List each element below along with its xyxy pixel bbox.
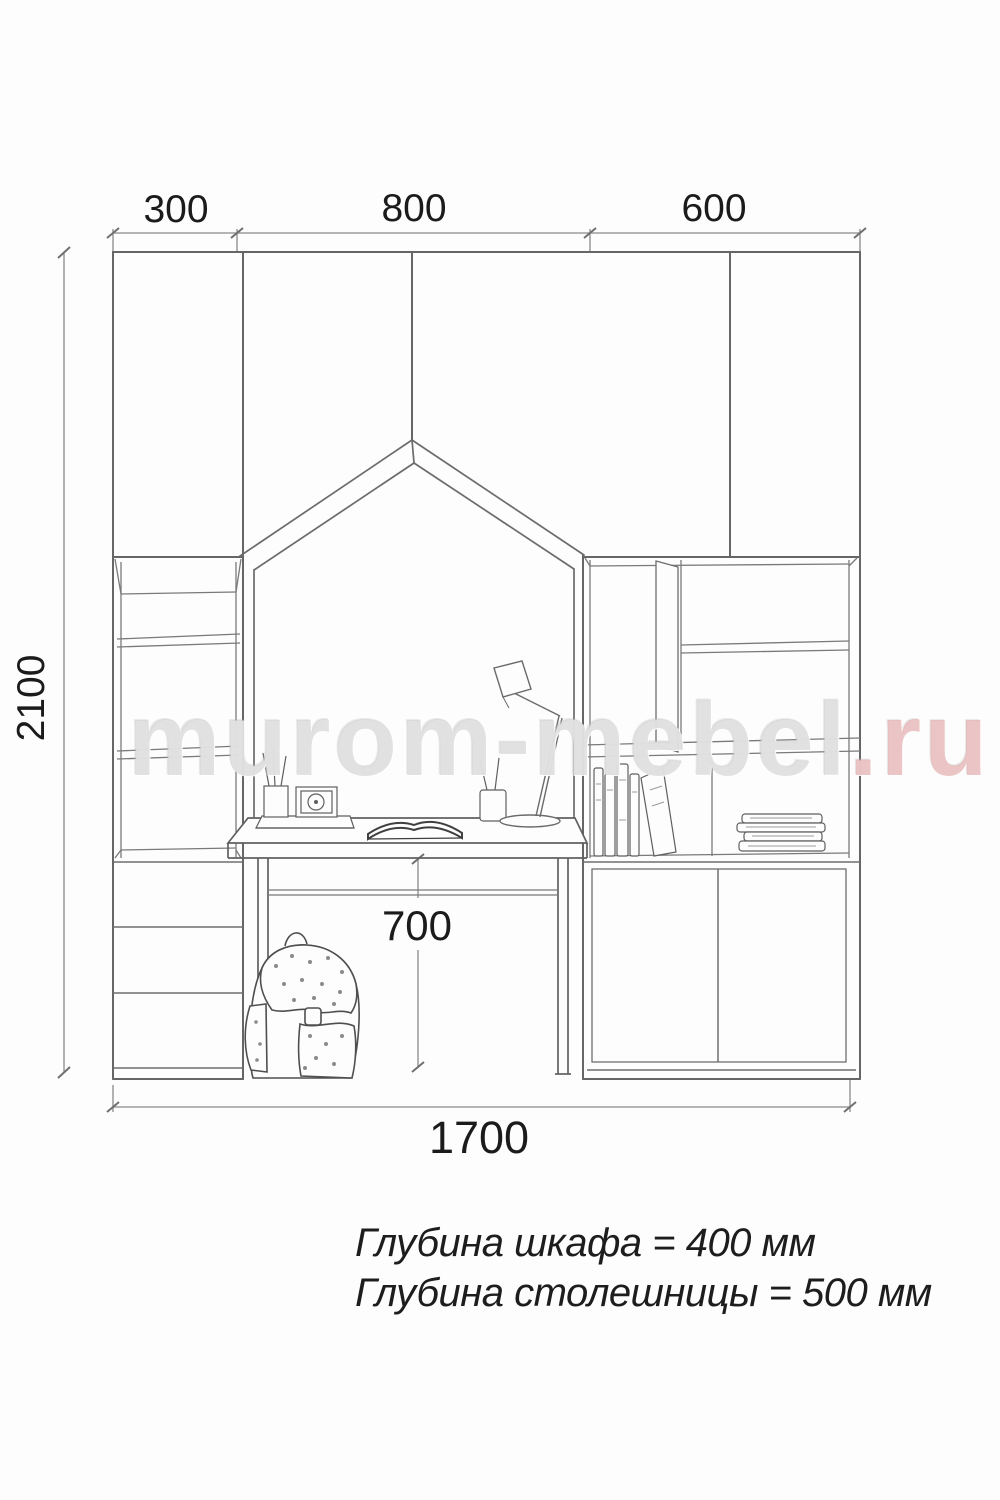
watermark: murom-mebel.ru xyxy=(128,688,908,792)
dim-label-1700: 1700 xyxy=(429,1112,529,1163)
dimension-annotations xyxy=(58,228,866,1112)
dim-label-300: 300 xyxy=(143,188,208,231)
note-cabinet-depth: Глубина шкафа = 400 мм xyxy=(355,1218,932,1268)
left-drawer-stack xyxy=(113,862,243,1068)
dim-label-800: 800 xyxy=(381,187,446,230)
dim-label-700: 700 xyxy=(382,902,452,949)
cabinet-outline xyxy=(113,252,860,1079)
book-stack xyxy=(737,814,825,851)
backpack xyxy=(245,933,359,1078)
watermark-suffix: .ru xyxy=(849,682,991,798)
depth-notes: Глубина шкафа = 400 мм Глубина столешниц… xyxy=(355,1218,932,1318)
watermark-main: murom-mebel xyxy=(128,682,849,798)
furniture-drawing-page: 300 800 600 2100 700 1700 murom-mebel.ru… xyxy=(0,0,1000,1500)
dim-label-2100: 2100 xyxy=(10,655,53,742)
note-desktop-depth: Глубина столешницы = 500 мм xyxy=(355,1268,932,1318)
right-lower-doors xyxy=(583,862,860,1070)
dim-label-600: 600 xyxy=(681,187,746,230)
